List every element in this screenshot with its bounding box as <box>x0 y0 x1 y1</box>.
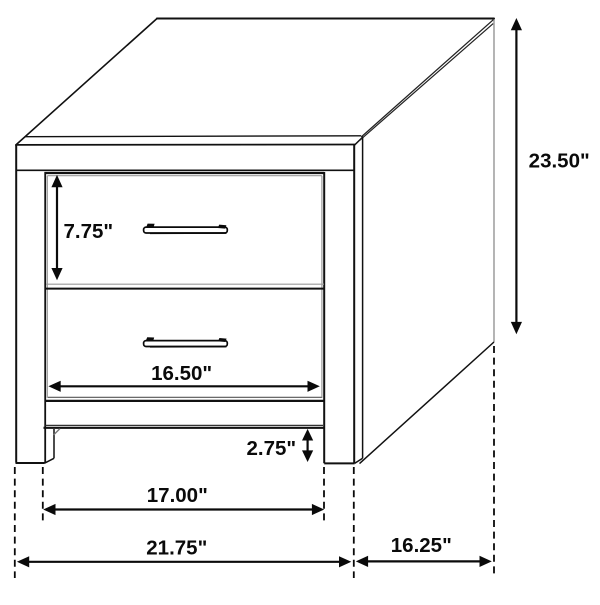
svg-text:23.50": 23.50" <box>529 149 590 172</box>
svg-text:2.75": 2.75" <box>246 437 296 460</box>
svg-text:21.75": 21.75" <box>146 536 207 559</box>
svg-text:17.00": 17.00" <box>147 484 208 507</box>
svg-text:16.50": 16.50" <box>151 362 212 385</box>
svg-text:7.75": 7.75" <box>63 220 113 243</box>
svg-text:16.25": 16.25" <box>391 534 452 557</box>
